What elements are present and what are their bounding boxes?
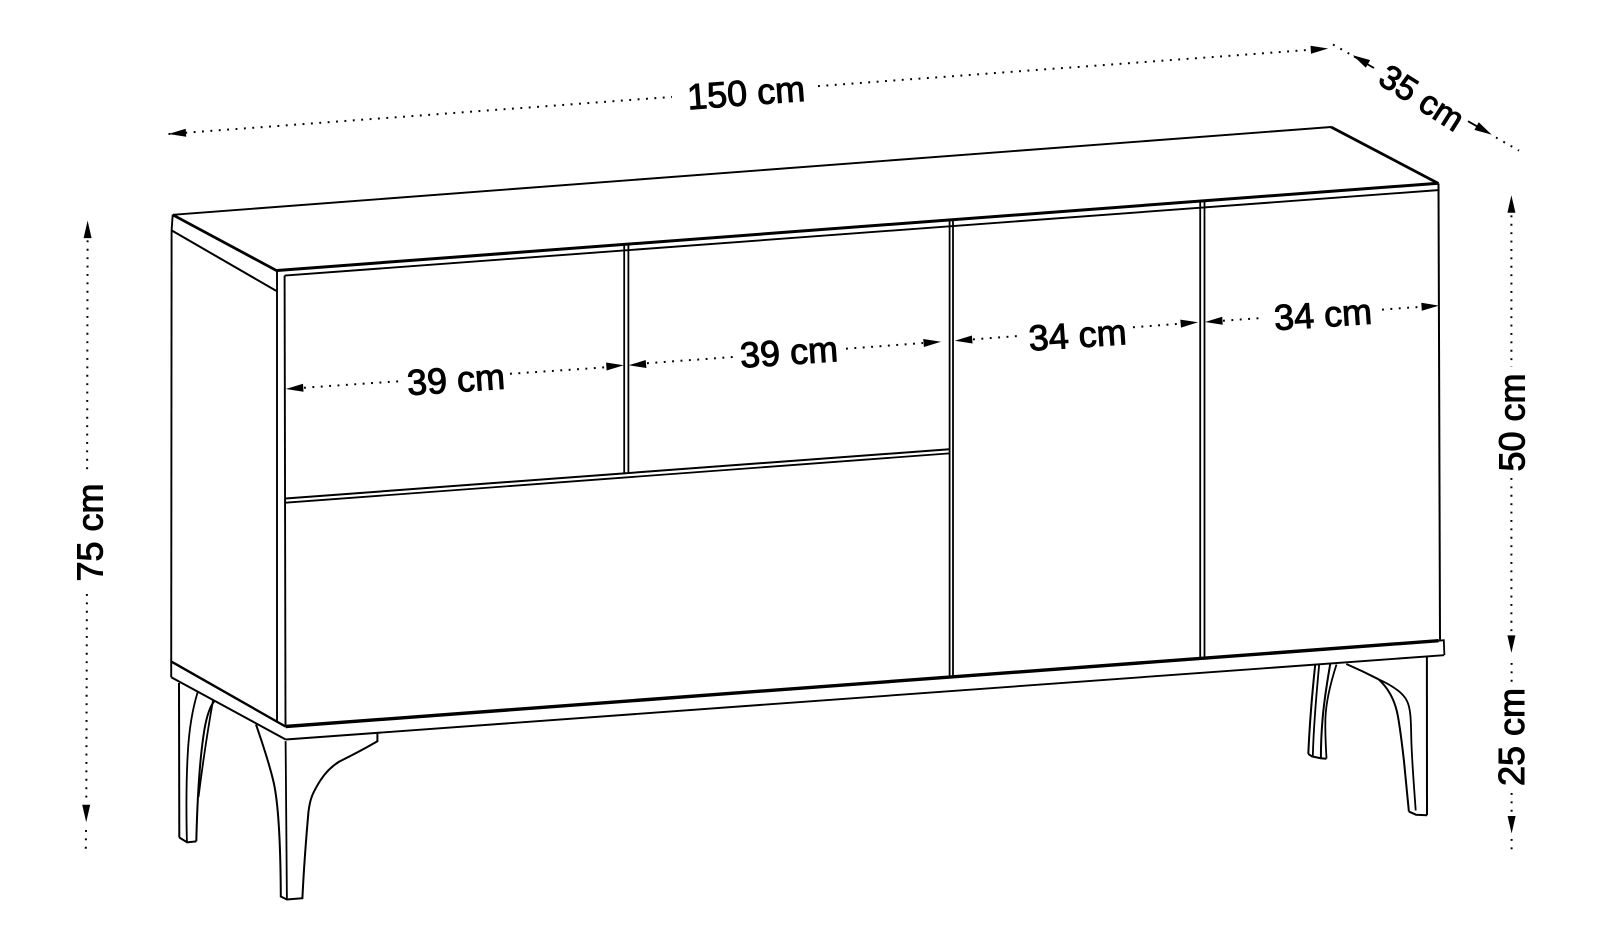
svg-text:34 cm: 34 cm — [1027, 311, 1128, 359]
svg-text:34 cm: 34 cm — [1273, 291, 1374, 339]
svg-text:39 cm: 39 cm — [739, 328, 840, 376]
svg-text:150 cm: 150 cm — [686, 68, 807, 118]
svg-text:39 cm: 39 cm — [406, 356, 507, 404]
svg-text:75 cm: 75 cm — [70, 483, 111, 581]
svg-text:25 cm: 25 cm — [1491, 688, 1532, 786]
svg-text:50 cm: 50 cm — [1492, 373, 1533, 471]
svg-text:35 cm: 35 cm — [1372, 57, 1471, 139]
